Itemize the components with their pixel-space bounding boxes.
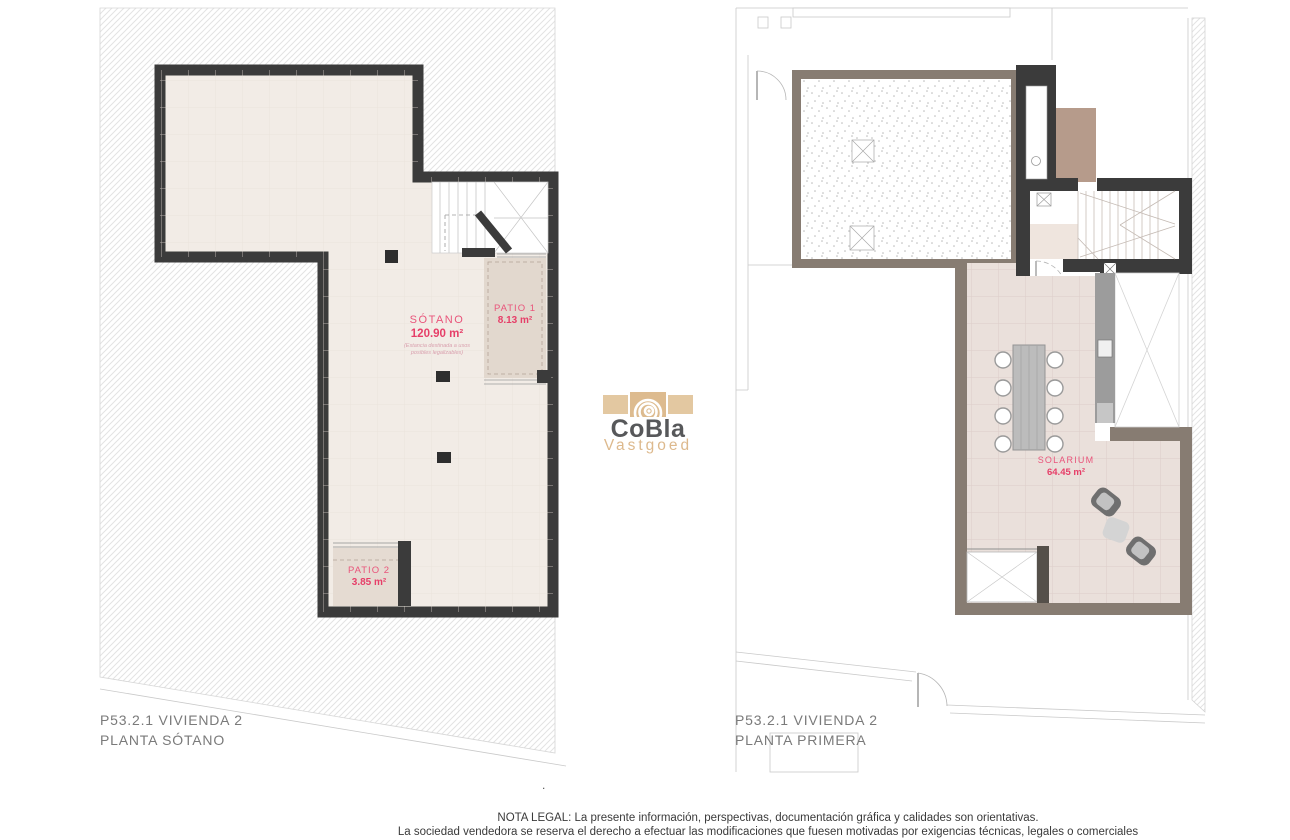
plan-reference: P53.2.1 VIVIENDA 2 <box>735 710 878 730</box>
column <box>385 250 398 263</box>
left-plan-title: P53.2.1 VIVIENDA 2 PLANTA SÓTANO <box>100 710 243 750</box>
solarium-area <box>955 263 1192 615</box>
patio1-area <box>484 254 551 384</box>
basement-staircase <box>432 182 548 257</box>
entry-door-arc <box>757 71 786 100</box>
stair-core <box>1016 65 1192 291</box>
brand-subtitle: Vastgoed <box>585 437 711 455</box>
separator-dot: . <box>542 778 545 792</box>
legal-line-2: La sociedad vendedora se reserva el dere… <box>385 826 1151 840</box>
patio2-area <box>333 541 411 606</box>
column <box>437 452 451 463</box>
plan-reference: P53.2.1 VIVIENDA 2 <box>100 710 243 730</box>
skylight-void <box>967 546 1049 603</box>
column <box>436 371 450 382</box>
kitchen-counter <box>1095 273 1115 423</box>
double-height-void <box>1115 273 1179 427</box>
floor-plan-sheet: SÓTANO 120.90 m² (Estancia destinada a u… <box>0 0 1290 840</box>
gravel-roof-area <box>797 75 1016 264</box>
elevator-shaft <box>1056 108 1096 182</box>
right-floor-plan <box>736 8 1205 772</box>
right-site-hatch-strip <box>1192 18 1205 712</box>
street-door-arc <box>918 673 947 707</box>
right-plan-title: P53.2.1 VIVIENDA 2 PLANTA PRIMERA <box>735 710 878 750</box>
legal-line-1: NOTA LEGAL: La presente información, per… <box>385 812 1151 826</box>
left-floor-plan <box>100 8 566 766</box>
plan-floor-name: PLANTA PRIMERA <box>735 730 878 750</box>
plan-floor-name: PLANTA SÓTANO <box>100 730 243 750</box>
legal-note: NOTA LEGAL: La presente información, per… <box>385 812 1151 839</box>
